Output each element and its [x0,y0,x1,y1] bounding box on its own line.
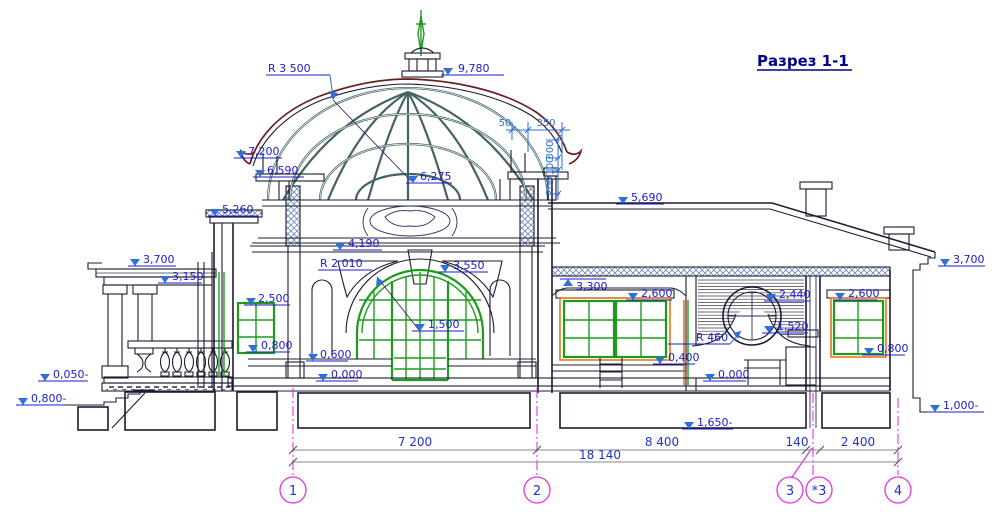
svg-text:6,275: 6,275 [420,170,452,183]
axis-bubble-2: 2 [524,477,550,503]
cartouche-ornament [363,206,457,236]
marker-hall-floor: 0,000 [316,368,363,381]
svg-text:0,400: 0,400 [668,351,700,364]
marker-portico-beam: 3,150 [158,270,204,283]
ladder [600,358,622,388]
svg-text:0,800: 0,800 [877,342,909,355]
marker-cornice-5260: 5,260 [208,203,258,216]
marker-wing-roof: 5,690 [616,191,664,204]
dome-radius-label: R 3 500 [268,62,311,75]
marker-wing-ceiling: 3,300 [560,279,608,293]
svg-text:1,520: 1,520 [777,320,809,333]
dim-8400: 8 400 [645,435,679,449]
marker-hall-wall-top: 4,190 [333,237,382,250]
marker-left-window-top: 2,500 [244,292,290,305]
svg-text:0,800-: 0,800- [31,392,66,405]
marker-footing-right: 1,000- [928,399,984,412]
dim-140: 140 [786,435,809,449]
axis-bubble-1: 1 [280,477,306,503]
marker-right-window-sill: 0,800 [862,342,909,355]
svg-text:3,150: 3,150 [172,270,204,283]
svg-text:1,650-: 1,650- [697,416,732,429]
dim-2400: 2 400 [841,435,875,449]
dim-200: 200 [545,176,556,195]
marker-dome-top: 9,780 [441,62,504,75]
svg-text:0,800: 0,800 [261,339,293,352]
svg-text:5,690: 5,690 [631,191,663,204]
dim-50: 50 [499,118,512,129]
section-drawing-canvas: 50 350 300 100 200 R 3 500 R 2 010 R 460… [0,0,1000,520]
svg-text:3,300: 3,300 [576,280,608,293]
axis-bubble-4: 4 [885,477,911,503]
arch-radius-label: R 2 010 [320,257,363,270]
marker-right-window-top: 2,600 [833,287,880,300]
svg-text:*3: *3 [812,484,827,499]
svg-text:0,600: 0,600 [320,348,352,361]
balusters [133,348,230,390]
foundations [78,392,890,430]
marker-hall-floor-step: 0,600 [306,348,352,361]
svg-text:9,780: 9,780 [458,62,490,75]
chimney-1 [800,182,832,216]
cupola [402,48,443,77]
dim-7200: 7 200 [398,435,432,449]
svg-text:1: 1 [289,484,297,499]
wing-double-window [560,298,670,360]
svg-text:1,500: 1,500 [428,318,460,331]
section-1-1-drawing: 50 350 300 100 200 R 3 500 R 2 010 R 460… [0,0,1000,520]
portico [63,252,232,428]
dim-total: 18 140 [579,448,621,462]
marker-left-window-sill: 0,800 [246,339,293,352]
svg-text:5,260: 5,260 [222,203,254,216]
marker-ground-left: 0,800- [16,392,66,405]
svg-text:0,000: 0,000 [718,368,750,381]
right-wing [548,182,941,428]
svg-text:7,200: 7,200 [248,145,280,158]
marker-cornice-6590: 6,590 [253,164,304,177]
marker-portico-top: 3,700 [128,253,176,266]
axis-bubble-3a: *3 [806,477,832,503]
svg-text:3,700: 3,700 [953,253,985,266]
marker-eave: 7,200 [234,145,282,158]
svg-text:3,700: 3,700 [143,253,175,266]
dim-350: 350 [536,118,555,129]
svg-text:0,050-: 0,050- [53,368,88,381]
marker-dome-inner: 6,275 [406,170,452,183]
marker-terrace: 0,050- [38,368,88,381]
round-window-radius-label: R 460 [696,331,728,344]
svg-text:1,000-: 1,000- [943,399,978,412]
svg-text:2,600: 2,600 [641,287,673,300]
svg-text:3,550: 3,550 [453,259,485,272]
marker-wing-dado: 0,400 [653,351,700,364]
svg-text:2,600: 2,600 [848,287,880,300]
drawing-title: Разрез 1-1 [757,52,852,70]
svg-text:2: 2 [533,484,541,499]
chimney-2 [884,227,914,250]
svg-text:6,590: 6,590 [267,164,299,177]
svg-text:2,500: 2,500 [258,292,290,305]
svg-text:Разрез 1-1: Разрез 1-1 [757,52,849,70]
svg-text:4,190: 4,190 [348,237,380,250]
dim-100: 100 [545,156,556,175]
marker-foundation-bottom: 1,650- [682,416,733,429]
axis-bubble-3: 3 [777,477,803,503]
svg-text:4: 4 [894,484,902,499]
marker-wing-window-top: 2,600 [626,287,673,300]
marker-right-cornice: 3,700 [938,253,985,266]
svg-text:3: 3 [786,484,794,499]
svg-text:2,440: 2,440 [779,288,811,301]
svg-text:0,000: 0,000 [331,368,363,381]
